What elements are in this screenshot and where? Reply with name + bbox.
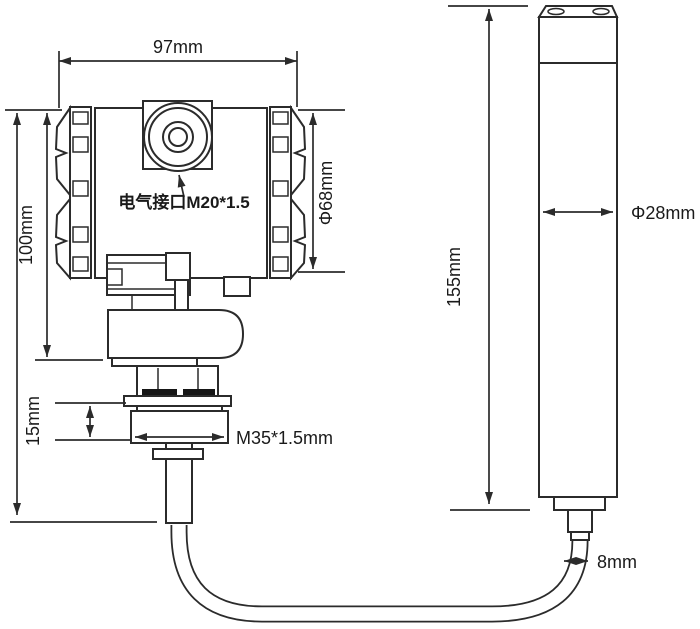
dim-label-probe-length: 155mm — [444, 247, 464, 307]
flange-lip — [112, 358, 197, 366]
dim-gland-height: 15mm — [23, 396, 131, 446]
dim-label-housing-height: 100mm — [16, 205, 36, 265]
left-end-cap — [56, 107, 91, 278]
dim-probe-length: 155mm — [444, 6, 530, 510]
right-end-cap — [270, 107, 305, 278]
dim-label-gland-height: 15mm — [23, 396, 43, 446]
dim-label-cable-diameter: 8mm — [597, 552, 637, 572]
dim-label-housing-diameter: Φ68mm — [316, 161, 336, 225]
seal-gasket — [142, 389, 177, 395]
dim-label-housing-width: 97mm — [153, 37, 203, 57]
hex-nut — [131, 411, 228, 443]
seal-plate — [124, 396, 231, 406]
label-electrical-port: 电气接口M20*1.5 — [118, 192, 249, 212]
capsule-flange — [108, 310, 243, 358]
probe — [539, 6, 617, 540]
terminal-bracket — [107, 253, 250, 310]
transmitter-housing — [56, 101, 305, 523]
seal-gasket — [183, 389, 215, 395]
cable — [179, 525, 580, 614]
probe-top-cap — [539, 6, 617, 17]
probe-step — [554, 497, 605, 510]
process-connection — [108, 310, 243, 523]
dimension-drawing: 97mm 100mm Φ68mm 电气接口M20*1.5 15mm M35*1.… — [0, 0, 700, 629]
probe-neck-tip — [571, 532, 589, 540]
callout-electrical-port: 电气接口M20*1.5 — [118, 175, 249, 212]
probe-body — [539, 17, 617, 497]
dim-housing-width: 97mm — [59, 37, 297, 108]
drawing-canvas: 97mm 100mm Φ68mm 电气接口M20*1.5 15mm M35*1.… — [0, 0, 700, 629]
dim-label-thread-spec: M35*1.5mm — [236, 428, 333, 448]
washer — [153, 449, 203, 459]
probe-neck — [568, 510, 592, 532]
dim-label-probe-diameter: Φ28mm — [631, 203, 695, 223]
electrical-connector — [143, 101, 212, 171]
